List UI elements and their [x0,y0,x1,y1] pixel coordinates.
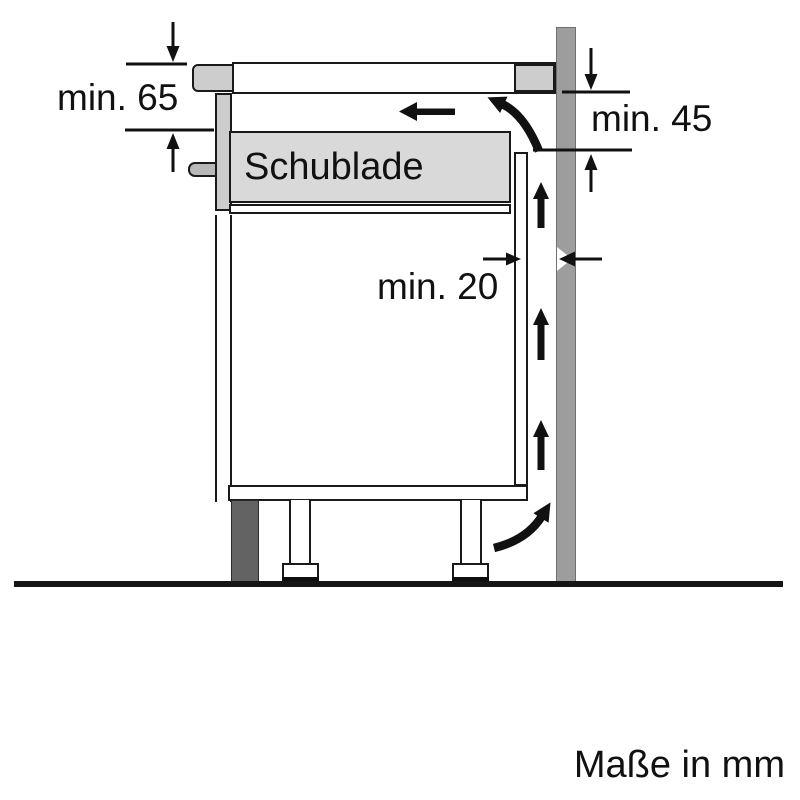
dim-label-min45: min. 45 [591,100,712,139]
air-up-arrow-2 [533,308,549,325]
airflow-arrows [399,97,551,548]
air-out-left-arrow [416,109,455,116]
dimension-min20 [483,247,602,271]
air-out-curve-arrow [502,104,539,151]
dim-label-min65: min. 65 [57,79,178,118]
air-up-arrow-3 [533,420,549,437]
air-in-curve-arrow [494,516,542,548]
dim-label-min20: min. 20 [377,268,498,307]
installation-diagram: Schublade [0,0,800,800]
air-up-arrow-1 [533,182,549,199]
units-note: Maße in mm [570,746,785,786]
